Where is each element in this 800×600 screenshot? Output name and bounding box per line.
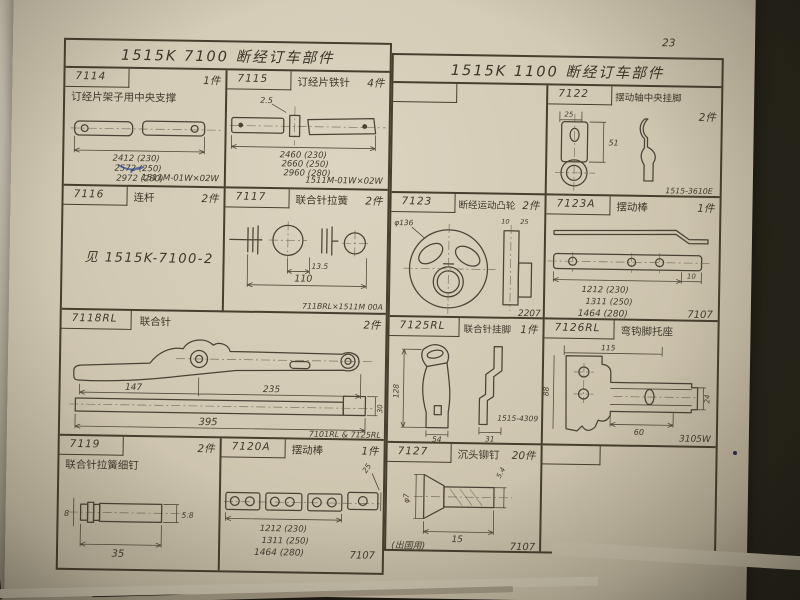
drawing-7123: φ136 10 25 2207 bbox=[391, 213, 545, 317]
dimension: φ136 bbox=[394, 218, 414, 227]
drawing-7119: 8 5.8 35 bbox=[60, 476, 219, 562]
quantity: 2件 bbox=[363, 318, 380, 333]
dimension: 128 bbox=[391, 384, 400, 399]
part-name: 沉头铆钉 bbox=[457, 447, 499, 463]
catalog-note: 1511M-01W×02W bbox=[305, 176, 383, 187]
part-name: 订经片铁针 bbox=[297, 74, 350, 90]
part-number-box: 7118RL bbox=[61, 310, 131, 330]
drawing-7115: 2.5 2460 (230) 2660 (250) 2960 (280) bbox=[227, 92, 388, 175]
part-name: 订经片架子用中央支撑 bbox=[71, 89, 176, 106]
cell-7122: 7122 摆动轴中央挂脚 2件 25 51 1515-3610E bbox=[547, 85, 722, 198]
part-name: 联合针拉簧 bbox=[295, 192, 348, 208]
part-name: 连杆 bbox=[133, 190, 154, 205]
catalog-note: 711BRL×1511M 00A bbox=[302, 302, 383, 312]
dimension: 10 bbox=[501, 218, 509, 226]
quantity: 1件 bbox=[697, 201, 714, 216]
catalog-note: 1511M-01W×02W bbox=[141, 173, 219, 184]
table-1515k-7100: 1515K 7100 断经订车部件 7114 1件 订经片架子用中央支撑 241… bbox=[56, 38, 392, 575]
usage-note: (出国用) bbox=[391, 540, 425, 552]
part-number-box-empty bbox=[393, 83, 457, 103]
dimension: 10 bbox=[687, 273, 697, 281]
part-number-box-empty bbox=[542, 445, 600, 465]
part-name: 摆动棒 bbox=[292, 442, 324, 457]
quantity: 1件 bbox=[361, 444, 378, 459]
table-1515k-1100: 1515K 1100 断经订车部件 7122 摆动轴中央挂脚 2件 25 bbox=[384, 53, 724, 556]
page-number: 23 bbox=[662, 37, 676, 49]
catalog-note: 7107 bbox=[687, 310, 713, 321]
part-number-box: 7119 bbox=[60, 436, 124, 456]
dimension: 25 bbox=[564, 111, 574, 119]
part-name: 断经运动凸轮 bbox=[458, 197, 515, 212]
quantity: 2件 bbox=[365, 194, 382, 209]
dimension: 5.4 bbox=[495, 466, 507, 480]
dimension: 395 bbox=[198, 417, 217, 428]
cell-7123a: 7123A 摆动棒 1件 10 1212 (230) 1311 (250) 14… bbox=[545, 195, 720, 322]
part-name: 弯钩脚托座 bbox=[620, 324, 673, 340]
dimension: φ7 bbox=[402, 493, 411, 503]
quantity: 1件 bbox=[520, 322, 537, 337]
manual-page: 23 1515K 7100 断经订车部件 7114 1件 订经片架子用中央支撑 bbox=[4, 0, 756, 600]
drawing-7122: 25 51 1515-3610E bbox=[547, 105, 718, 196]
dimension: 115 bbox=[601, 343, 616, 352]
part-number-box: 7123 bbox=[391, 193, 455, 213]
part-number-box: 7117 bbox=[225, 188, 289, 208]
dimension: 1212 (230) bbox=[581, 285, 628, 296]
quantity: 2件 bbox=[197, 441, 214, 456]
quantity: 2件 bbox=[201, 191, 218, 206]
part-number-box: 7126RL bbox=[544, 319, 614, 339]
drawing-7123a: 10 1212 (230) 1311 (250) 1464 (280) 7107 bbox=[545, 215, 719, 320]
drawing-7117: 13.5 110 711BRL×1511M 00A bbox=[225, 208, 387, 313]
catalog-note: 1515-3610E bbox=[665, 186, 713, 196]
part-name: 联合针拉簧细钉 bbox=[65, 457, 139, 473]
cell-7117: 7117 联合针拉簧 2件 13.5 110 711BRL bbox=[224, 188, 388, 315]
quantity: 1件 bbox=[203, 73, 220, 88]
catalog-sheet: 23 1515K 7100 断经订车部件 7114 1件 订经片架子用中央支撑 bbox=[56, 38, 724, 580]
cell-7125rl: 7125RL 联合针挂脚 1件 128 54 31 bbox=[388, 317, 545, 445]
dimension: 30 bbox=[376, 404, 384, 414]
cell-7127: 7127 沉头铆钉 20件 φ7 5.4 15 (出国用) bbox=[386, 443, 543, 551]
cell-7119: 7119 2件 联合针拉簧细钉 8 5.8 35 bbox=[58, 436, 222, 571]
drawing-7127: φ7 5.4 15 (出国用) 7107 bbox=[387, 461, 540, 551]
catalog-note: 7107 bbox=[510, 542, 536, 553]
dimension: 31 bbox=[485, 434, 495, 443]
dimension: 5.8 bbox=[182, 511, 194, 520]
photo-of-manual-page: 23 1515K 7100 断经订车部件 7114 1件 订经片架子用中央支撑 bbox=[0, 0, 800, 600]
cell-blank-bottom bbox=[541, 445, 716, 554]
cell-blank-top bbox=[392, 83, 549, 195]
dimension: 1464 (280) bbox=[254, 548, 304, 559]
quantity: 2件 bbox=[522, 198, 539, 213]
cell-7126rl: 7126RL 弯钩脚托座 115 88 60 bbox=[543, 319, 718, 448]
part-number-box: 7125RL bbox=[389, 317, 459, 337]
dimension: 51 bbox=[608, 138, 618, 147]
part-number-box: 7123A bbox=[546, 195, 610, 215]
cell-7123: 7123 断经运动凸轮 2件 φ136 bbox=[390, 193, 547, 319]
drawing-7125rl: 128 54 31 1515-4309 bbox=[389, 337, 543, 443]
dimension: 24 bbox=[703, 394, 711, 403]
dimension: 54 bbox=[432, 435, 442, 444]
cell-7114: 7114 1件 订经片架子用中央支撑 2412 (230) 2572 (250)… bbox=[64, 68, 228, 189]
drawing-7126rl: 115 88 60 24 3105W bbox=[543, 337, 717, 444]
catalog-note: 7107 bbox=[349, 550, 375, 561]
dimension: 1311 (250) bbox=[262, 536, 309, 547]
catalog-note: 3105W bbox=[679, 435, 712, 446]
dimension: 25 bbox=[360, 462, 373, 475]
cell-7118rl: 7118RL 联合针 2件 147 235 bbox=[60, 310, 386, 441]
part-name: 摆动轴中央挂脚 bbox=[615, 89, 682, 104]
catalog-note: 2207 bbox=[518, 309, 541, 319]
quantity: 4件 bbox=[367, 76, 384, 91]
dimension: 1212 (230) bbox=[260, 524, 307, 535]
dimension: 60 bbox=[634, 428, 644, 437]
part-number-box: 7127 bbox=[387, 443, 451, 463]
dimension: 13.5 bbox=[311, 262, 328, 271]
dimension: 15 bbox=[451, 535, 463, 545]
part-name: 联合针挂脚 bbox=[463, 321, 511, 336]
dimension: 1464 (280) bbox=[578, 309, 628, 320]
dimension: 88 bbox=[541, 386, 550, 396]
dimension: 110 bbox=[294, 273, 312, 284]
dimension: 147 bbox=[125, 383, 143, 393]
ink-dot bbox=[733, 451, 737, 455]
cell-7116: 7116 连杆 2件 见 1515K-7100-2 bbox=[62, 186, 226, 313]
reference-note: 见 1515K-7100-2 bbox=[84, 246, 213, 267]
dimension: 8 bbox=[64, 509, 69, 518]
cell-7115: 7115 订经片铁针 4件 2.5 2460 (230) bbox=[226, 70, 390, 191]
dimension: 25 bbox=[520, 218, 528, 226]
drawing-7120a: 25 1212 (230) 1311 (250) 1464 (280) 7107 bbox=[221, 458, 383, 570]
catalog-note: 7101RL & 7125RL bbox=[309, 430, 381, 440]
drawing-7118rl: 147 235 30 395 7101RL & 7125RL bbox=[63, 330, 385, 439]
part-number-box: 7120A bbox=[221, 438, 285, 458]
part-name: 联合针 bbox=[140, 314, 172, 329]
catalog-note: 1515-4309 bbox=[497, 414, 538, 424]
quantity: 20件 bbox=[512, 448, 536, 463]
dimension: 2.5 bbox=[260, 96, 273, 105]
part-number-box: 7122 bbox=[548, 85, 612, 105]
cell-7120a: 7120A 摆动棒 1件 25 bbox=[220, 438, 384, 573]
dimension: 1311 (250) bbox=[585, 297, 632, 308]
dimension: 235 bbox=[263, 385, 281, 395]
dimension: 35 bbox=[112, 549, 125, 560]
part-name: 摆动棒 bbox=[616, 199, 648, 214]
part-number-box: 7114 bbox=[65, 68, 129, 88]
part-number-box: 7115 bbox=[227, 70, 291, 90]
part-number-box: 7116 bbox=[63, 186, 127, 206]
